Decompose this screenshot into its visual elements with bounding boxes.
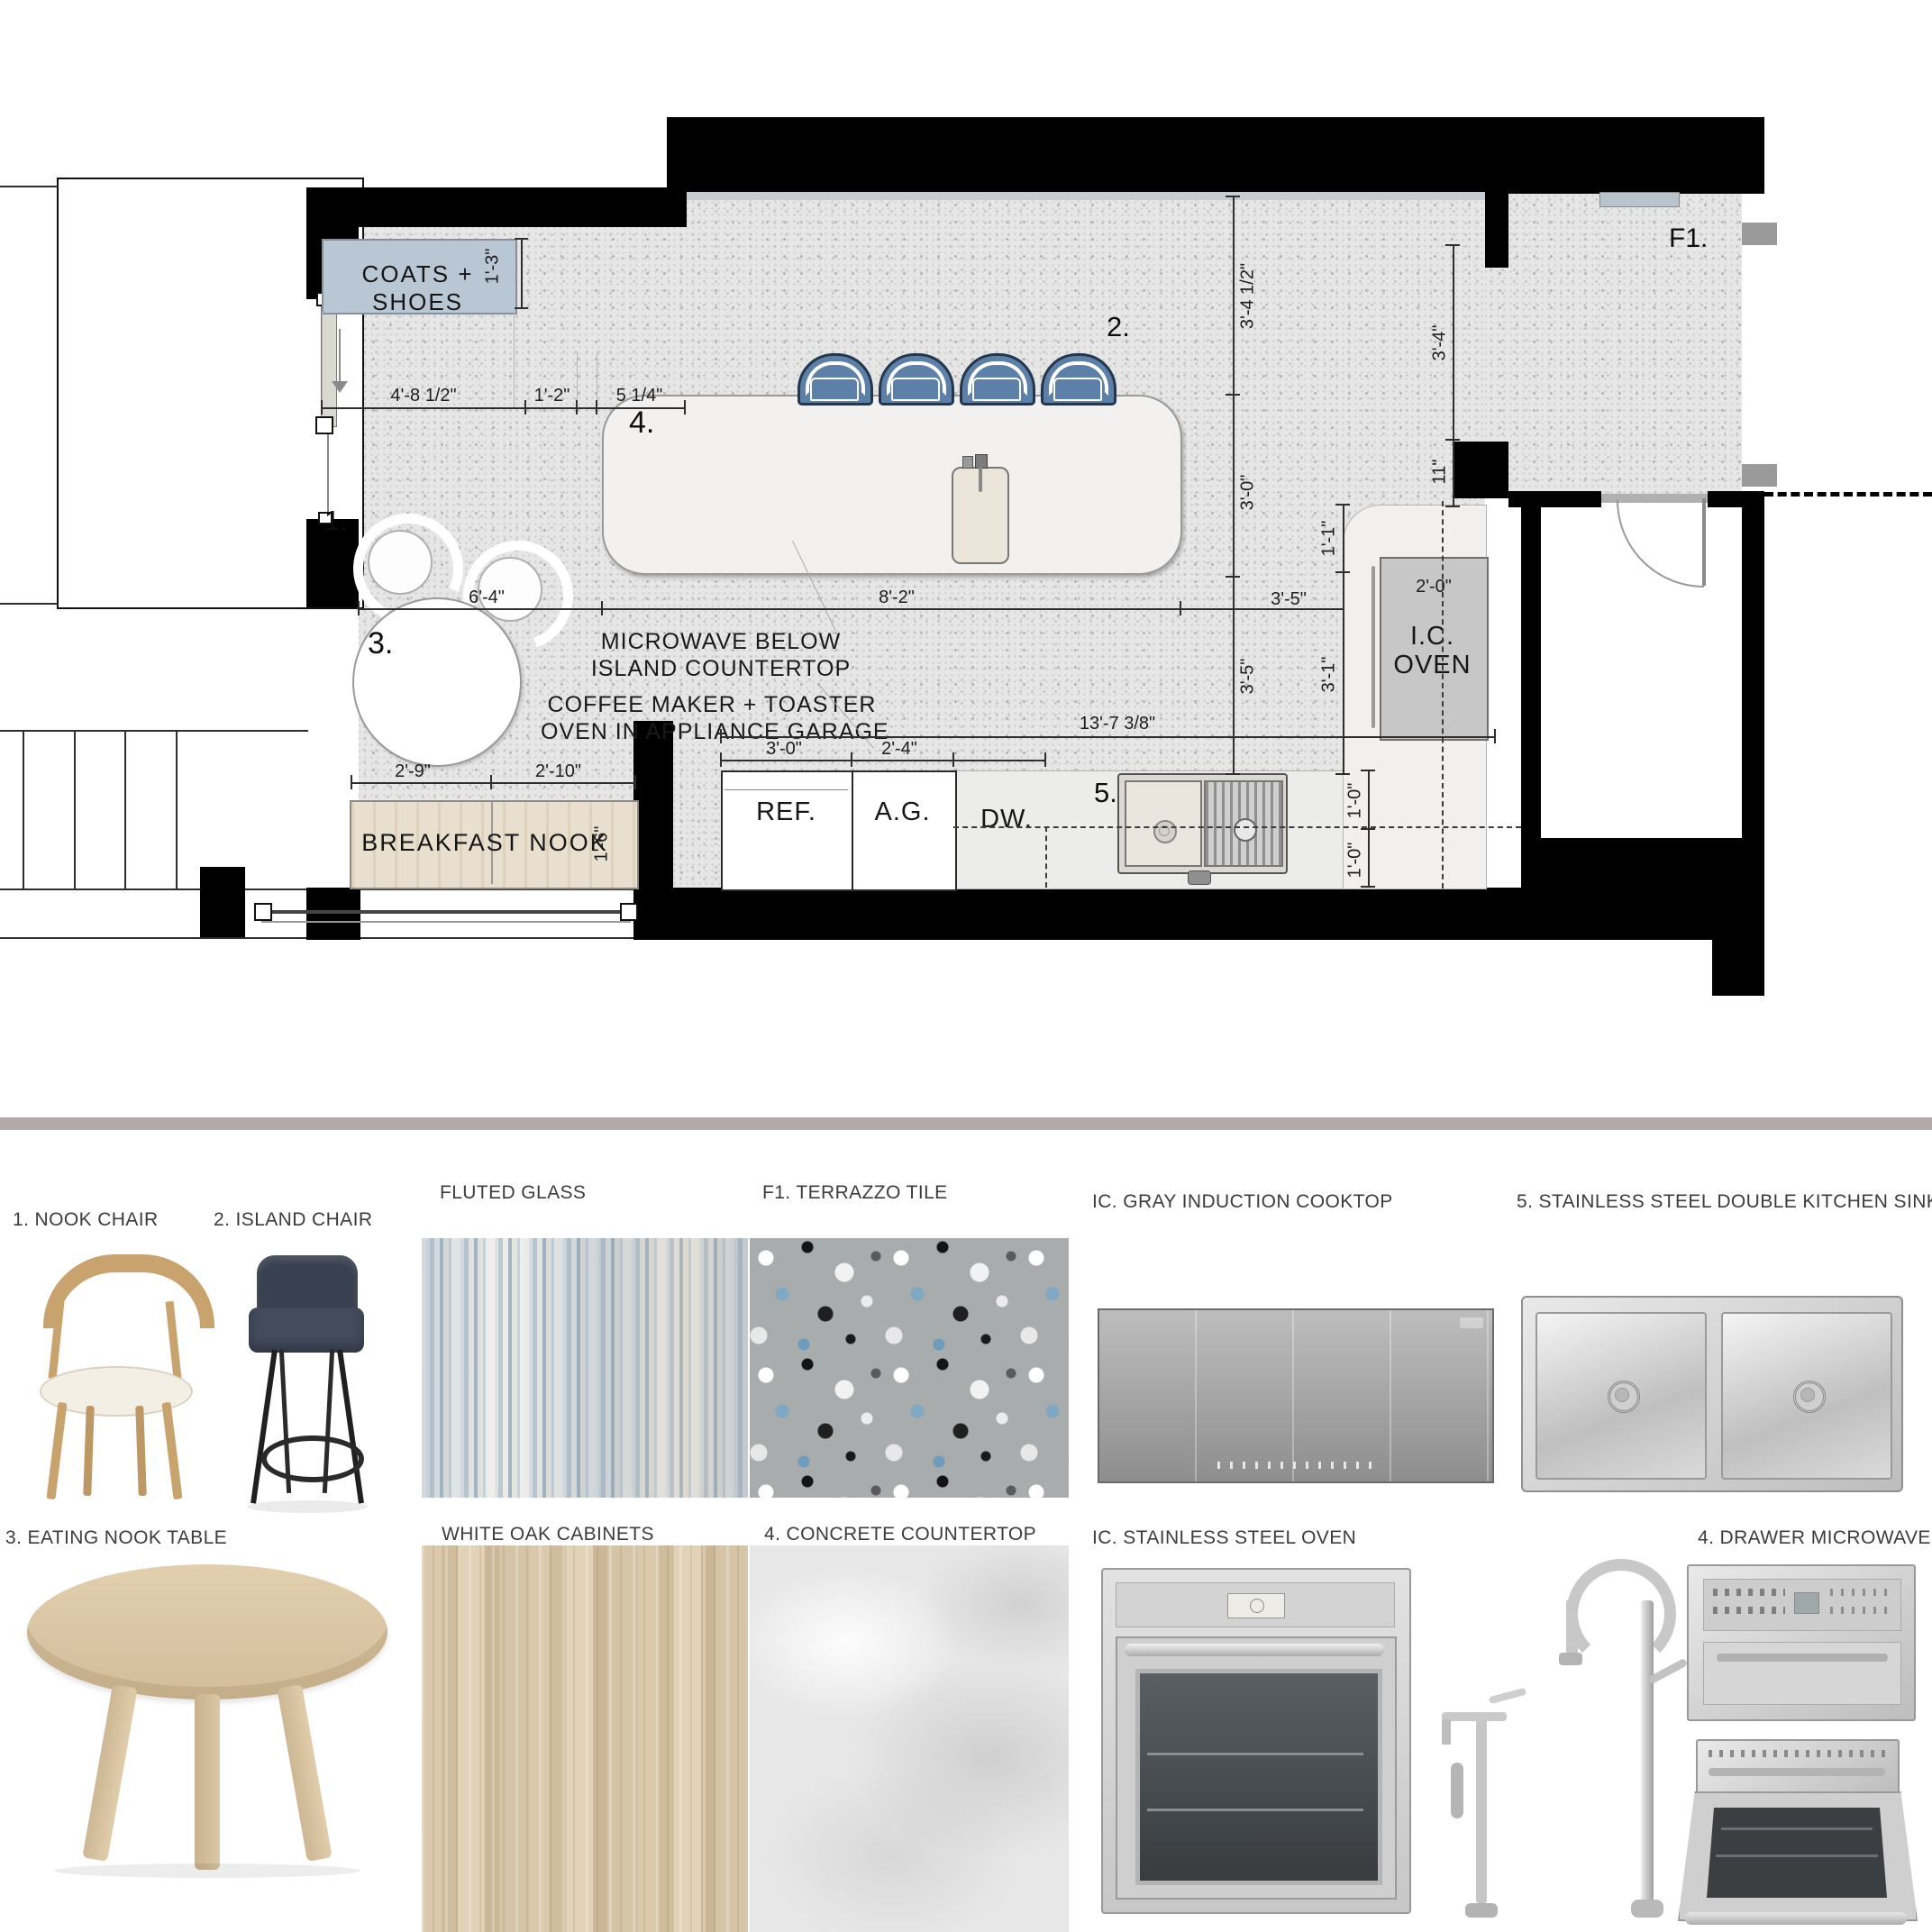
marker-sink: 5. (1094, 777, 1117, 809)
kitchen-design-sheet: COATS + SHOES 4. 2. 3. 1. BREAKFAST NOOK… (0, 0, 1932, 1932)
dim-counter-corner: 1'-1" (1319, 498, 1340, 579)
sink-basin-left (1125, 780, 1202, 867)
dim-aisle-c: 3'-1" (1319, 634, 1340, 715)
dim-line (351, 782, 635, 784)
stair-edge (0, 730, 308, 732)
dw-label: DW. (957, 805, 1056, 834)
ag-box (852, 770, 957, 891)
nook-table-image (27, 1550, 387, 1879)
wall-hall-left (1521, 491, 1541, 838)
dim-coats-side: 5 1/4" (597, 386, 682, 406)
microwave-front-image (1687, 1564, 1916, 1721)
section-divider (0, 1117, 1932, 1130)
chair-seat (810, 378, 859, 401)
wall-mid-lower (1454, 442, 1508, 498)
stair-tread (176, 732, 178, 890)
wall-bottom-band (671, 888, 1764, 940)
sink-faucet-icon (1188, 870, 1211, 885)
note-microwave-1: MICROWAVE BELOW (577, 629, 865, 655)
wall-top-right (667, 117, 1764, 194)
dim-island-length: 8'-2" (856, 588, 937, 608)
board-label-oven: IC. STAINLESS STEEL OVEN (1092, 1527, 1356, 1549)
dim-island-clearance: 3'-0" (1238, 452, 1259, 533)
ref-inner-line (724, 789, 848, 790)
board-label-island-chair: 2. ISLAND CHAIR (214, 1209, 372, 1231)
dim-ag-width: 2'-4" (863, 739, 935, 760)
white-oak-swatch (422, 1545, 748, 1932)
door-jamb-block (1742, 464, 1777, 487)
marker-nook-table: 3. (368, 626, 393, 661)
dim-aisle-b: 3'-5" (1238, 636, 1259, 717)
breakfast-nook-label: BREAKFAST NOOK (350, 829, 620, 857)
slide-direction-line (339, 329, 341, 383)
island-faucet-icon (962, 456, 973, 469)
dim-counter-b: 1'-0" (1345, 820, 1366, 901)
site-line (0, 186, 58, 187)
dashed-wall-line (1764, 492, 1932, 497)
stair-tread (74, 732, 76, 890)
entry-window (1599, 192, 1680, 207)
dim-ref-width: 3'-0" (748, 739, 820, 760)
wall-stub-bottom-right (1712, 940, 1764, 996)
board-label-cooktop: IC. GRAY INDUCTION COOKTOP (1092, 1191, 1393, 1213)
marker-island: 4. (629, 406, 654, 441)
cooktop-image (1098, 1308, 1494, 1483)
oven-image (1101, 1568, 1411, 1914)
slide-direction-arrow-icon (332, 381, 348, 393)
counter-centerline (953, 826, 1521, 828)
marker-nook-chair: 1. (324, 505, 348, 537)
entry-room-label: F1. (1669, 223, 1708, 254)
window-end (254, 903, 272, 921)
ic-oven-label-1: I.C. (1380, 622, 1485, 652)
dim-coats-depth: 1'-3" (483, 226, 504, 307)
fluted-glass-swatch (422, 1238, 748, 1498)
concrete-swatch (750, 1545, 1069, 1932)
dim-line (359, 608, 1343, 610)
dim-entry-opening: 3'-4" (1430, 303, 1451, 384)
dim-line (322, 407, 685, 409)
note-coffee-1: COFFEE MAKER + TOASTER (541, 692, 883, 718)
faucet-pulldown-image (1557, 1559, 1674, 1921)
sink-image (1521, 1296, 1903, 1492)
wall-pillar (633, 721, 673, 940)
chair-seat (891, 378, 940, 401)
dim-clearance-top: 3'-4 1/2" (1238, 247, 1259, 346)
dim-line (1233, 196, 1235, 775)
stair-tread (124, 732, 126, 890)
door-handle (315, 416, 333, 434)
wall-top-left (306, 187, 687, 227)
island-faucet-stem (979, 467, 982, 492)
dim-entry-jamb: 11" (1430, 432, 1451, 513)
stair-tread (23, 732, 24, 890)
wall-mid-upper (1485, 194, 1508, 268)
chair-seat (1053, 378, 1102, 401)
dim-coats-width: 4'-8 1/2" (360, 386, 487, 406)
nook-chair-image (18, 1251, 212, 1501)
dim-aisle-a: 3'-5" (1253, 589, 1325, 610)
wall-hall-bottom (1521, 838, 1764, 888)
ref-label: REF. (721, 797, 852, 827)
dim-line (1343, 505, 1344, 775)
kitchen-sink (1117, 773, 1288, 874)
dim-bench-depth: 1'-6" (592, 804, 613, 885)
board-label-oak: WHITE OAK CABINETS (442, 1524, 654, 1545)
dim-bench-b: 2'-10" (515, 761, 601, 782)
door-jamb-block (1742, 223, 1777, 245)
sink-drain-icon (1234, 818, 1257, 842)
board-label-nook-table: 3. EATING NOOK TABLE (5, 1527, 227, 1549)
ic-oven-door-arc (1372, 566, 1375, 728)
entry-door-swing-arc (1617, 500, 1704, 588)
nook-table (352, 597, 522, 767)
window-sill-top (687, 192, 1485, 200)
ext-line (322, 311, 323, 407)
microwave-open-image (1678, 1739, 1914, 1930)
ic-oven-label-2: OVEN (1380, 651, 1485, 680)
counter-centerline (1045, 826, 1047, 888)
post (200, 867, 245, 937)
board-label-nook-chair: 1. NOOK CHAIR (13, 1209, 159, 1231)
dim-coats-gap: 1'-2" (514, 386, 590, 406)
dim-counter-depth: 2'-0" (1384, 577, 1483, 597)
dim-line (521, 239, 523, 309)
ag-label: A.G. (852, 797, 953, 827)
dim-line (1453, 245, 1454, 507)
site-line (0, 603, 58, 605)
dim-bench-a: 2'-9" (377, 761, 449, 782)
dim-nook-width: 6'-4" (446, 588, 527, 608)
board-label-fluted-glass: FLUTED GLASS (440, 1182, 586, 1204)
nook-window-line2 (261, 921, 631, 923)
kitchen-island (602, 395, 1182, 575)
board-label-microwave: 4. DRAWER MICROWAVE (1698, 1527, 1931, 1549)
island-chair-image (225, 1255, 387, 1518)
note-coffee-2: OVEN IN APPLIANCE GARAGE (541, 719, 883, 745)
chair-seat (972, 378, 1021, 401)
faucet-bar-image (1424, 1676, 1541, 1921)
board-label-terrazzo-tile: F1. TERRAZZO TILE (762, 1182, 948, 1204)
dim-line (721, 736, 1496, 738)
window-end (620, 903, 638, 921)
dim-run-total: 13'-7 3/8" (1032, 714, 1203, 734)
board-label-concrete: 4. CONCRETE COUNTERTOP (764, 1524, 1036, 1545)
nook-window-line (261, 910, 631, 914)
marker-island-chair: 2. (1107, 311, 1130, 343)
nook-chair-seat (368, 530, 433, 595)
sink-basin-right-rack (1204, 780, 1283, 867)
oven-centerline (1442, 501, 1444, 889)
note-microwave-2: ISLAND COUNTERTOP (577, 656, 865, 682)
terrazzo-tile-swatch (750, 1238, 1069, 1498)
dim-line (721, 760, 1045, 761)
board-label-sink: 5. STAINLESS STEEL DOUBLE KITCHEN SINK (1517, 1191, 1932, 1213)
wall-bottom-left-corner (306, 888, 360, 940)
